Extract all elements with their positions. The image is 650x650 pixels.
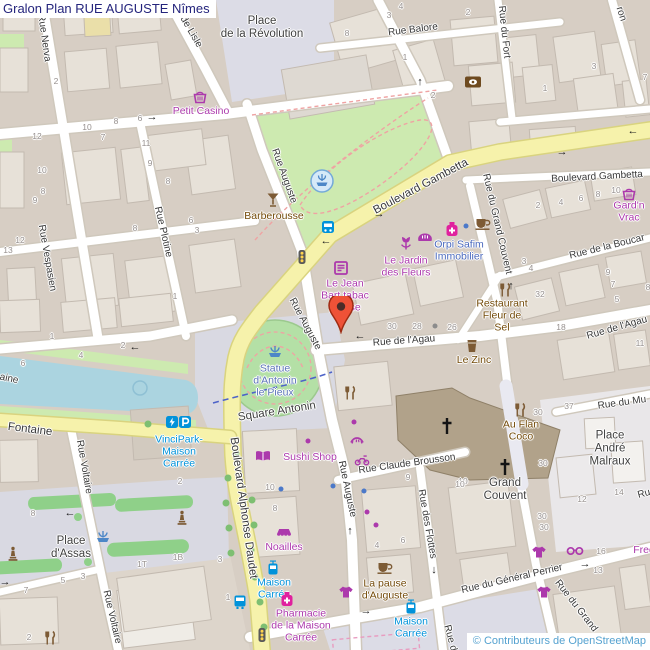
poi-sushi-shop-label: Sushi Shop [283,452,337,464]
oneway-arrow: ← [628,125,639,137]
books-icon [255,450,271,462]
poi-place-d-assas-label: Placed'Assas [51,535,91,561]
house-number: 37 [564,401,573,411]
street-label: Rue Vespasien [36,224,59,292]
house-number: 3 [218,554,223,564]
house-number: 6 [579,193,584,203]
poi-dot [306,439,311,444]
poi-le-zinc-label: Le Zinc [457,355,491,367]
poi-dot [331,484,336,489]
house-number: 6 [138,113,143,123]
house-number: 8 [114,116,119,126]
fountain-icon [95,529,111,543]
house-number: 3 [522,256,527,266]
street-label: Rue des Flottes [415,489,438,560]
street-label: Rue de la Boucar [568,232,646,262]
house-number: 2 [54,76,59,86]
poi-grand-couvent-label: GrandCouvent [484,477,527,503]
cocktail-icon [267,193,280,208]
oneway-arrow: ← [321,235,332,247]
bus-icon [234,595,246,609]
poi-place-andre-malraux-label: PlaceAndréMalraux [590,430,631,469]
house-number: 8 [273,503,278,513]
statue-icon [8,547,18,562]
street-label: Rue d [441,624,459,650]
poi-pharmacie-maison-carree-label: Pharmaciede la MaisonCarrée [271,608,331,643]
street-label: Rue du Fort [496,5,513,59]
house-number: 16 [596,546,605,556]
poi-dot [365,510,370,515]
church-cross-icon [498,458,512,476]
oneway-arrow: ↑ [508,280,514,292]
scooter-icon [355,455,370,466]
house-number: 2 [121,340,126,350]
charging-icon [166,416,178,428]
house-number: 2 [27,632,32,642]
house-number: 26 [447,322,456,332]
cafe-icon [475,218,491,230]
street-label: Rue Plotine [152,206,175,259]
poi-dot [433,324,438,329]
poi-stop-maison-carree-2-label: MaisonCarrée [394,616,428,640]
house-number: 4 [399,1,404,11]
street-label: Rue Nerva [35,14,53,63]
poi-vincipark-label: VinciPark-MaisonCarrée [155,434,203,469]
clothes-icon [532,546,547,559]
house-number: 7 [611,279,616,289]
house-number: 8 [646,282,650,292]
street-label: Boulevard Gambetta [551,169,643,185]
poi-jardin-des-fleurs-label: Le Jardindes Fleurs [381,255,430,279]
house-number: 4 [529,263,534,273]
street-label: Ru [636,487,650,501]
house-number: 8 [596,189,601,199]
house-number: 3 [195,225,200,235]
house-number: 4 [375,540,380,550]
house-number: 12 [15,235,24,245]
house-number: 9 [148,158,153,168]
poi-dot [374,523,379,528]
fountain-circled-icon [310,169,334,193]
bar-icon [467,339,478,353]
restaurant-icon [514,403,526,418]
house-number: 1B [173,552,183,562]
house-number: 8 [31,508,36,518]
house-number: 18 [556,322,565,332]
traffic-signals-icon [299,250,306,264]
house-number: 30 [539,522,548,532]
house-number: 28 [412,321,421,331]
street-label: Rue Balore [387,21,438,38]
street-label: Rue de l'Agau [372,333,435,349]
flower-icon [400,236,413,251]
house-number: 4 [559,197,564,207]
street-label: Rue Voltaire [74,439,94,495]
basket-icon [193,91,208,104]
location-marker-pin[interactable] [328,296,354,334]
traffic-signals-icon [259,628,266,642]
house-number: 12 [577,494,586,504]
house-number: 5 [615,294,620,304]
poi-au-flan-coco-label: Au FlanCoco [503,419,539,443]
house-number: 30 [533,407,542,417]
church-cross-icon [440,417,454,435]
house-number: 10 [37,165,46,175]
house-number: 1 [50,331,55,341]
oneway-arrow: → [557,146,568,158]
house-number: 10 [82,122,91,132]
street-label: Rue du Grand [552,578,599,634]
house-number: 6 [189,215,194,225]
house-number: 30 [537,511,546,521]
poi-gardn-vrac-label: Gard'nVrac [613,200,644,224]
house-number: 2 [466,7,471,17]
poi-dot [362,489,367,494]
house-number: 3 [81,571,86,581]
house-number: 3 [387,10,392,20]
street-label: Rue Auguste [336,460,359,518]
labels-layer: Rue Nervade LisleRue BaloreRue du Fortro… [0,0,650,650]
poi-fred-label: Fred [633,545,650,557]
house-number: 1 [403,52,408,62]
newspaper-icon [334,261,348,275]
house-number: 30 [538,458,547,468]
oneway-arrow: → [147,111,158,123]
street-label: Rue Voltaire [100,589,123,645]
street-label: Fontaine [7,421,53,439]
bakery-icon [417,232,433,242]
restaurant-icon [344,386,356,401]
house-number: 1 [543,83,548,93]
poi-petit-casino-label: Petit Casino [173,106,230,118]
oneway-arrow: ↑ [347,525,353,537]
poi-barberousse-label: Barberousse [244,211,304,223]
basket-icon [622,188,637,201]
oneway-arrow: ← [130,341,141,353]
oneway-arrow: → [0,576,11,588]
street-label: Rue du Mu [597,394,647,412]
oneway-arrow: → [580,558,591,570]
street-label: Square Antonin [237,399,317,424]
house-number: 7 [101,132,106,142]
house-number: 32 [535,289,544,299]
house-number: 9 [33,195,38,205]
poi-orpi-safim-label: Orpi SafimImmobilier [434,239,484,263]
clothes-icon [339,586,354,599]
tram-icon [268,561,279,576]
awning-icon [276,528,292,538]
house-number: 8 [345,28,350,38]
poi-noailles-label: Noailles [265,542,302,554]
fountain-icon [267,344,283,358]
poi-dot [464,224,469,229]
pharmacy-icon [446,222,459,237]
poi-statue-antonin-label: Statued'Antoninle Pieux [253,363,296,398]
house-number: 5 [61,575,66,585]
poi-restaurant-fleur-de-sel-label: RestaurantFleur deSel [476,298,527,333]
house-number: 7 [24,585,29,595]
oneway-arrow: ← [65,507,76,519]
glasses-icon [567,547,584,556]
house-number: 1 [173,291,178,301]
house-number: 8 [41,186,46,196]
house-number: 13 [593,565,602,575]
tram-icon [406,600,417,615]
clothes-icon [537,586,552,599]
house-number: 2 [178,476,183,486]
oneway-arrow: ↓ [431,564,437,576]
house-number: 13 [3,245,12,255]
house-number: 14 [614,487,623,497]
house-number: 1T [137,559,147,569]
restaurant-icon [44,631,56,646]
parking-icon [179,416,191,428]
house-number: 10 [455,479,464,489]
house-number: 30 [387,321,396,331]
beauty-icon [350,435,365,445]
street-label: aine [0,372,19,387]
house-number: 11 [142,138,151,148]
house-number: 11 [636,338,645,348]
bus-stop-icon [322,221,335,236]
house-number: 8 [133,223,138,233]
house-number: 8 [166,176,171,186]
statue-icon [177,511,187,526]
oneway-arrow: ↑ [417,76,423,88]
house-number: 10 [611,185,620,195]
house-number: 9 [406,472,411,482]
house-number: 1 [226,592,231,602]
street-label: Boulevard Gambetta [371,157,470,218]
map[interactable]: Rue Nervade LisleRue BaloreRue du Fortro… [0,0,650,650]
house-number: 12 [32,131,41,141]
house-number: 6 [21,358,26,368]
house-number: 3 [592,61,597,71]
house-number: 2 [536,200,541,210]
currency-icon [465,76,482,88]
oneway-arrow: ← [355,330,366,342]
house-number: 10 [265,482,274,492]
street-label: ron [613,5,628,22]
house-number: 9 [606,267,611,277]
pharmacy-icon [281,592,294,607]
street-label: Rue Auguste [287,296,324,352]
osm-attribution[interactable]: © Contributeurs de OpenStreetMap [467,633,650,650]
street-label: de Lisle [178,14,205,49]
poi-dot [279,487,284,492]
page-title: Gralon Plan RUE AUGUSTE Nîmes [0,0,216,18]
oneway-arrow: → [361,605,372,617]
house-number: 2 [431,90,436,100]
poi-dot [352,420,357,425]
house-number: 7 [643,72,648,82]
poi-place-de-la-revolution-label: Placede la Révolution [221,15,303,41]
poi-la-pause-d-auguste-label: La paused'Auguste [362,578,408,602]
cafe-icon [377,562,393,574]
house-number: 4 [79,350,84,360]
house-number: 6 [401,535,406,545]
oneway-arrow: → [374,208,385,220]
